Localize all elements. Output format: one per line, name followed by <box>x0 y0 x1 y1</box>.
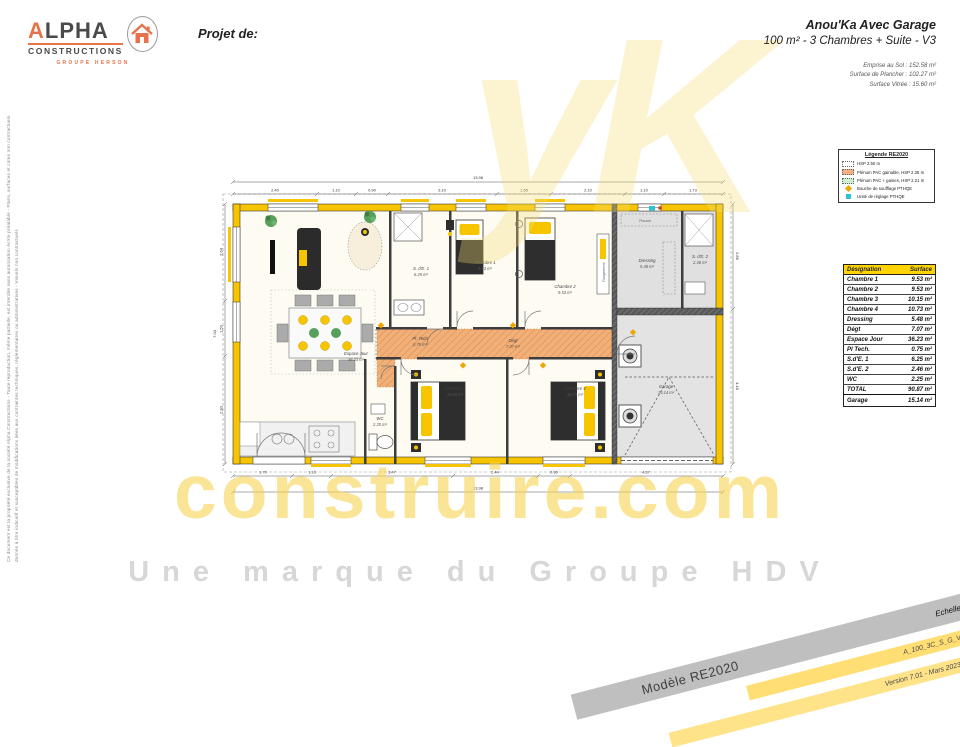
window-top-ch1 <box>456 199 486 211</box>
row-value: 0.75 m² <box>897 345 936 355</box>
window-bottom-ch3 <box>425 457 471 467</box>
room-label-sde1: S. d'E. 1 <box>413 266 430 271</box>
entry-door-opening <box>253 457 305 464</box>
room-label-chambre2: Chambre 2 <box>554 284 576 289</box>
row-label: Dressing <box>844 315 897 325</box>
legend-item: HSP 2.50 m <box>842 161 931 167</box>
metric-vitree: Surface Vitrée : 15.60 m² <box>850 81 936 90</box>
table-row: WC2.25 m² <box>844 375 936 385</box>
table-row: Chambre 310.15 m² <box>844 295 936 305</box>
legend-item: Plénum PAC gainable, HSP 2.35 m <box>842 169 931 175</box>
dim: 2.64 <box>219 247 224 256</box>
room-area: 10.73 m² <box>567 392 584 397</box>
corridor-stub <box>377 359 395 387</box>
row-value: 9.53 m² <box>897 285 936 295</box>
room-area: 6.25 m² <box>414 272 429 277</box>
dim: 1.10 <box>640 188 649 193</box>
legend-label: HSP 2.50 m <box>857 161 880 166</box>
metric-plancher: Surface de Plancher : 102.27 m² <box>850 71 936 80</box>
table-header-row: Désignation Surface <box>844 265 936 275</box>
window-top-ch2 <box>535 199 565 211</box>
logo-name: AALPHALPHA <box>28 20 123 42</box>
table-row: Chambre 410.73 m² <box>844 305 936 315</box>
legend-item: Bouche de soufflage PTHQE <box>842 186 931 191</box>
surface-table: Désignation Surface Chambre 19.53 m² Cha… <box>843 264 936 407</box>
row-label: Pl Tech. <box>844 345 897 355</box>
table-row: S.d'E. 22.46 m² <box>844 365 936 375</box>
legend-label: Bouche de soufflage PTHQE <box>857 186 912 191</box>
room-label-chambre1: Chambre 1 <box>474 260 496 265</box>
placard-label: Placard <box>639 219 651 223</box>
control-unit-marker <box>649 206 655 211</box>
garage-label: Garage <box>844 395 897 407</box>
room-label-dressing: Dressing <box>639 258 657 263</box>
room-area: 5.48 m² <box>640 264 655 269</box>
row-value: 2.25 m² <box>897 375 936 385</box>
dim: 1.55 <box>520 188 529 193</box>
dim: 1.10 <box>308 470 317 475</box>
dim-top-overall: 13.98 <box>473 175 484 180</box>
reference-label: A_100_3C_S_G_V3 <box>903 634 960 657</box>
dim: 2.10 <box>584 188 593 193</box>
legend-label: Plénum PAC + gaines, HSP 2.21 m <box>857 178 924 183</box>
projet-de-label: Projet de: <box>198 26 258 41</box>
row-label: Chambre 2 <box>844 285 897 295</box>
floor-plan: Espace Jour 36.23 m² S. d'E. 1 6.25 m² C… <box>213 142 748 514</box>
dim: 2.44 <box>491 470 500 475</box>
col-surface: Surface <box>897 265 936 275</box>
logo-accent-letter: A <box>28 18 45 43</box>
room-area: 0.75 m² <box>413 342 428 347</box>
table-total-row: TOTAL90.87 m² <box>844 385 936 395</box>
table-row: Pl Tech.0.75 m² <box>844 345 936 355</box>
row-value: 7.07 m² <box>897 325 936 335</box>
left-disclaimer: Ce document est la propriété exclusive d… <box>6 92 19 562</box>
logo-group-line: GROUPE HERSON <box>28 60 158 66</box>
plant <box>265 215 277 227</box>
dim: 0.90 <box>368 188 377 193</box>
room-area: 9.53 m² <box>478 266 493 271</box>
dim: 2.90 <box>219 405 224 414</box>
legend-box: Légende RE2020 HSP 2.50 m Plénum PAC gai… <box>838 149 935 203</box>
dim: 2.40 <box>271 188 280 193</box>
legend-swatch-plenum-green <box>842 178 854 184</box>
disclaimer-line-2: donnés à titre indicatif et susceptibles… <box>14 92 20 562</box>
table-garage-row: Garage15.14 m² <box>844 395 936 407</box>
window-bottom-kitchen <box>311 457 351 467</box>
suite-garage-wall <box>617 308 723 315</box>
room-area: 15.14 m² <box>658 390 675 395</box>
model-label: Modèle RE2020 <box>640 657 740 696</box>
rangements-label: Rangements <box>602 262 606 282</box>
surface-metrics: Emprise au Sol : 152.58 m² Surface de Pl… <box>850 62 936 90</box>
scale-label: Echelle : 1/75e <box>934 596 960 618</box>
legend-swatch-hsp <box>842 161 854 167</box>
row-value: 36.23 m² <box>897 335 936 345</box>
window-top-living <box>268 199 318 211</box>
row-label: S.d'E. 1 <box>844 355 897 365</box>
red-marker <box>658 206 662 210</box>
table-row: Chambre 29.53 m² <box>844 285 936 295</box>
window-left-2 <box>233 302 240 342</box>
row-value: 10.73 m² <box>897 305 936 315</box>
legend-label: Plénum PAC gainable, HSP 2.35 m <box>857 170 924 175</box>
dim: 1.73 <box>689 188 698 193</box>
bed-chambre3 <box>411 370 465 452</box>
dim-left-overall: 7.04 <box>213 329 217 338</box>
version-label: Version 7.01 - Mars 2023 <box>884 662 960 688</box>
garage-gate-opening <box>621 457 713 464</box>
bed-chambre4 <box>551 370 605 452</box>
dim: 4.37 <box>642 470 651 475</box>
col-designation: Désignation <box>844 265 897 275</box>
legend-item: Unité de réglage PTHQE <box>842 194 931 199</box>
logo-stamp-circle <box>127 16 158 52</box>
watermark-tagline: Une marque du Groupe HDV <box>0 556 960 589</box>
room-label-degt: Dégt <box>508 338 518 343</box>
row-label: Dégt <box>844 325 897 335</box>
garage-value: 15.14 m² <box>897 395 936 407</box>
room-area: 7.07 m² <box>506 344 521 349</box>
dim: 2.86 <box>735 252 740 261</box>
window-bottom-ch4 <box>543 457 585 467</box>
logo-word: CONSTRUCTIONS <box>28 43 123 56</box>
row-value: 9.53 m² <box>897 275 936 285</box>
dim: 1.70 <box>259 470 268 475</box>
legend-item: Plénum PAC + gaines, HSP 2.21 m <box>842 178 931 184</box>
row-value: 2.46 m² <box>897 365 936 375</box>
room-area: 36.23 m² <box>348 357 365 362</box>
row-value: 10.15 m² <box>897 295 936 305</box>
vent-diamond-icon <box>844 185 851 192</box>
room-label-pl-tech: Pl. Tech <box>412 336 428 341</box>
dim-bottom-overall: 13.98 <box>473 486 484 491</box>
room-area: 9.53 m² <box>558 290 573 295</box>
rug-and-lamp <box>348 222 382 270</box>
dim: 0.90 <box>550 470 559 475</box>
plant <box>364 211 376 223</box>
project-title: Anou'Ka Avec Garage <box>764 18 936 32</box>
title-block: Anou'Ka Avec Garage 100 m² - 3 Chambres … <box>764 18 936 47</box>
company-logo: AALPHALPHA CONSTRUCTIONS GROUPE HERSON <box>28 20 158 66</box>
dim: 1.50 <box>219 324 224 333</box>
legend-swatch-plenum-orange <box>842 169 854 175</box>
row-value: 6.25 m² <box>897 355 936 365</box>
disclaimer-line-1: Ce document est la propriété exclusive d… <box>6 92 12 562</box>
metric-emprise: Emprise au Sol : 152.58 m² <box>850 62 936 71</box>
room-label-chambre3: Chambre 3 <box>444 386 466 391</box>
row-label: Chambre 3 <box>844 295 897 305</box>
project-subtitle: 100 m² - 3 Chambres + Suite - V3 <box>764 35 936 47</box>
row-value: 5.48 m² <box>897 315 936 325</box>
sofa <box>297 228 321 290</box>
table-row: Dressing5.48 m² <box>844 315 936 325</box>
legend-title: Légende RE2020 <box>842 152 931 158</box>
control-unit-icon <box>846 194 851 199</box>
tv-unit <box>270 240 275 274</box>
row-label: WC <box>844 375 897 385</box>
room-label-sde2: S. d'E. 2 <box>692 254 709 259</box>
row-label: Chambre 4 <box>844 305 897 315</box>
table-row: Espace Jour36.23 m² <box>844 335 936 345</box>
row-label: Chambre 1 <box>844 275 897 285</box>
legend-label: Unité de réglage PTHQE <box>857 194 905 199</box>
row-label: Espace Jour <box>844 335 897 345</box>
room-area: 2.25 m² <box>372 422 388 427</box>
row-label: S.d'E. 2 <box>844 365 897 375</box>
room-label-espace-jour: Espace Jour <box>344 351 368 356</box>
room-label-wc: WC <box>376 416 384 421</box>
dim: 3.47 <box>388 470 397 475</box>
room-label-garage: Garage <box>659 384 674 389</box>
window-top-sde1 <box>401 199 429 211</box>
table-row: Chambre 19.53 m² <box>844 275 936 285</box>
table-row: Dégt7.07 m² <box>844 325 936 335</box>
room-area: 10.15 m² <box>447 392 464 397</box>
total-label: TOTAL <box>844 385 897 395</box>
room-label-chambre4: Chambre 4 <box>564 386 586 391</box>
total-value: 90.87 m² <box>897 385 936 395</box>
dim: 1.10 <box>332 188 341 193</box>
bay-window-left <box>228 227 240 282</box>
room-area: 2.46 m² <box>692 260 708 265</box>
dim: 3.10 <box>438 188 447 193</box>
table-row: S.d'E. 16.25 m² <box>844 355 936 365</box>
garage-separating-wall <box>612 204 617 464</box>
house-icon <box>129 22 155 46</box>
dim: 4.18 <box>735 382 740 391</box>
